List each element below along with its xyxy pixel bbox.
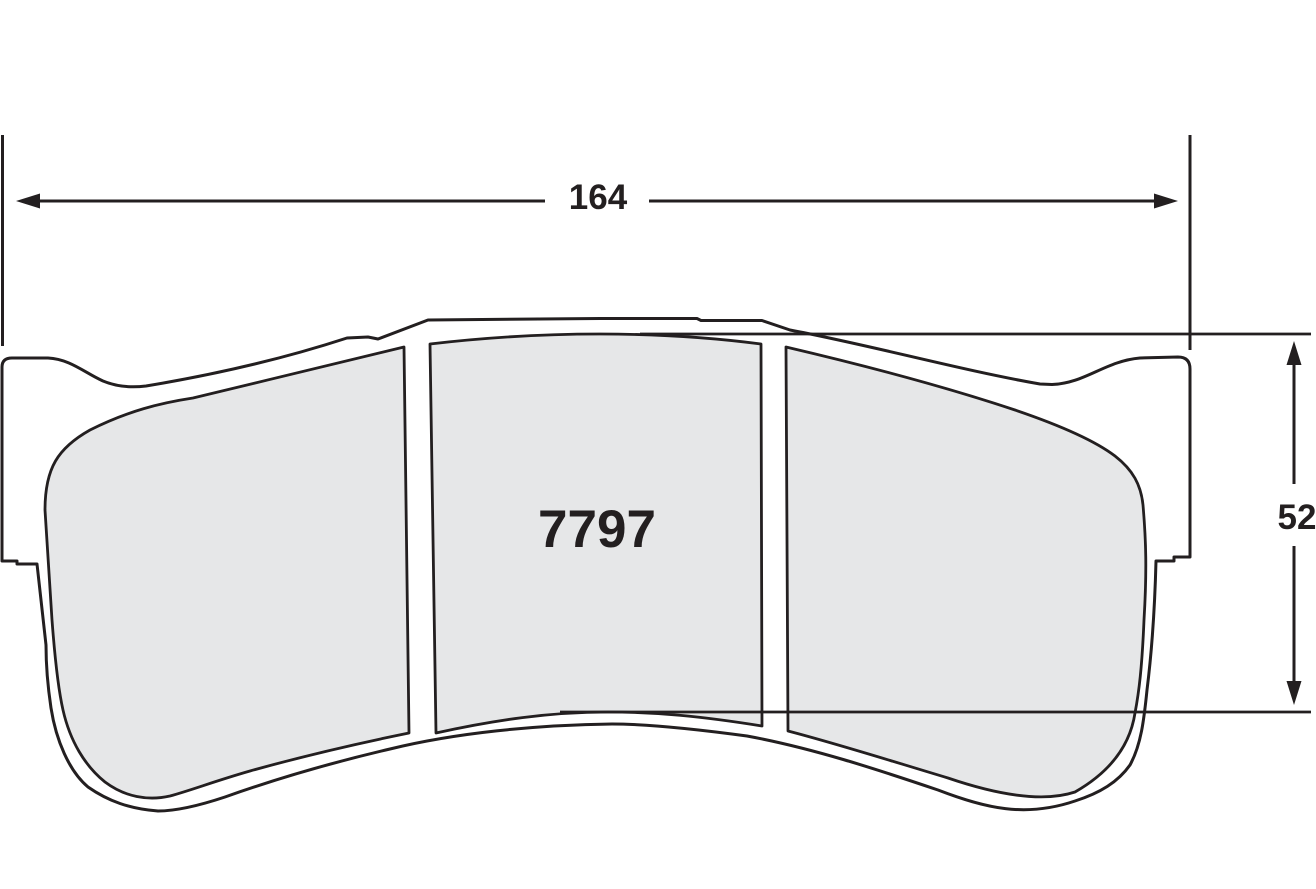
- svg-text:52: 52: [1278, 498, 1316, 537]
- svg-text:164: 164: [569, 178, 628, 217]
- svg-text:7797: 7797: [538, 500, 656, 559]
